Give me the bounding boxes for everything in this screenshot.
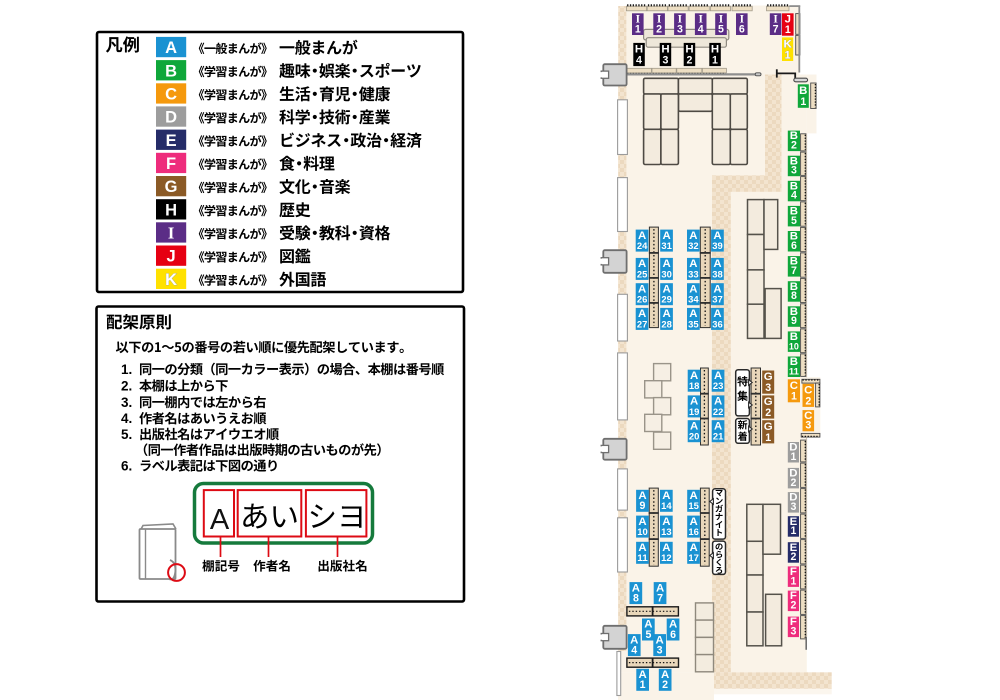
svg-text:27: 27 <box>637 319 648 330</box>
svg-text:A: A <box>713 283 721 295</box>
svg-text:A: A <box>638 308 646 320</box>
svg-text:9: 9 <box>791 315 797 327</box>
svg-text:26: 26 <box>637 295 648 306</box>
svg-text:A: A <box>714 396 722 408</box>
svg-text:A: A <box>638 258 646 270</box>
svg-text:4: 4 <box>636 55 642 67</box>
svg-text:37: 37 <box>712 295 723 306</box>
svg-text:2: 2 <box>790 477 796 489</box>
svg-text:B: B <box>165 62 177 80</box>
svg-text:6: 6 <box>670 629 676 641</box>
svg-text:A: A <box>714 370 722 382</box>
svg-text:2: 2 <box>656 23 662 35</box>
svg-text:1: 1 <box>640 679 646 691</box>
svg-text:A: A <box>638 516 646 528</box>
svg-text:5.: 5. <box>121 427 132 442</box>
svg-text:19: 19 <box>689 407 700 418</box>
svg-text:2: 2 <box>790 551 796 563</box>
svg-text:3: 3 <box>765 382 771 394</box>
svg-text:A: A <box>662 516 670 528</box>
svg-text:21: 21 <box>713 432 724 443</box>
svg-text:2: 2 <box>790 600 796 612</box>
svg-text:16: 16 <box>688 527 699 538</box>
svg-text:F: F <box>166 155 176 173</box>
svg-text:31: 31 <box>661 241 672 252</box>
svg-text:A: A <box>662 308 670 320</box>
svg-text:J: J <box>167 248 176 266</box>
svg-text:7: 7 <box>657 593 663 605</box>
svg-text:A: A <box>210 504 230 536</box>
svg-text:17: 17 <box>688 553 699 564</box>
svg-text:18: 18 <box>689 381 700 392</box>
svg-text:A: A <box>662 490 670 502</box>
svg-text:7: 7 <box>773 23 779 35</box>
svg-text:5: 5 <box>791 215 797 227</box>
svg-text:24: 24 <box>637 241 648 252</box>
svg-text:A: A <box>165 39 177 57</box>
svg-text:1: 1 <box>800 96 806 108</box>
svg-text:20: 20 <box>689 432 700 443</box>
svg-text:K: K <box>165 271 177 289</box>
svg-text:D: D <box>165 109 177 127</box>
svg-text:39: 39 <box>712 241 723 252</box>
svg-text:5: 5 <box>718 23 724 35</box>
svg-text:13: 13 <box>661 527 672 538</box>
svg-text:1: 1 <box>785 49 791 61</box>
svg-text:38: 38 <box>712 269 723 280</box>
svg-text:A: A <box>689 308 697 320</box>
svg-text:A: A <box>690 396 698 408</box>
svg-text:4.: 4. <box>121 411 132 426</box>
svg-text:1: 1 <box>785 24 791 36</box>
svg-text:1.: 1. <box>121 362 132 377</box>
svg-text:H: H <box>165 201 177 219</box>
svg-text:A: A <box>713 258 721 270</box>
svg-text:33: 33 <box>688 269 699 280</box>
svg-text:3.: 3. <box>121 395 132 410</box>
svg-text:10: 10 <box>789 341 799 352</box>
svg-text:11: 11 <box>789 366 800 377</box>
svg-text:1: 1 <box>765 432 771 444</box>
svg-text:3: 3 <box>790 626 796 638</box>
svg-text:A: A <box>689 230 697 242</box>
svg-text:A: A <box>638 283 646 295</box>
svg-text:E: E <box>166 132 177 150</box>
svg-text:A: A <box>689 283 697 295</box>
svg-text:A: A <box>662 542 670 554</box>
svg-text:2: 2 <box>662 679 668 691</box>
svg-text:1: 1 <box>791 391 797 403</box>
svg-text:3: 3 <box>663 55 669 67</box>
svg-text:2.: 2. <box>121 379 132 394</box>
svg-text:28: 28 <box>661 319 672 330</box>
svg-text:A: A <box>713 308 721 320</box>
svg-text:A: A <box>662 283 670 295</box>
svg-text:C: C <box>165 86 177 104</box>
svg-text:34: 34 <box>688 295 699 306</box>
svg-text:A: A <box>690 370 698 382</box>
svg-text:A: A <box>689 542 697 554</box>
svg-text:4: 4 <box>791 190 797 202</box>
svg-text:23: 23 <box>713 381 724 392</box>
svg-text:9: 9 <box>640 500 646 512</box>
svg-text:6: 6 <box>791 240 797 252</box>
svg-text:A: A <box>689 490 697 502</box>
svg-text:A: A <box>713 230 721 242</box>
svg-text:29: 29 <box>661 295 672 306</box>
svg-text:A: A <box>689 516 697 528</box>
svg-text:A: A <box>714 420 722 432</box>
svg-text:11: 11 <box>637 553 648 564</box>
svg-text:3: 3 <box>791 165 797 177</box>
svg-text:1: 1 <box>790 451 796 463</box>
svg-text:2: 2 <box>791 140 797 152</box>
svg-text:2: 2 <box>805 395 811 407</box>
svg-text:14: 14 <box>661 501 672 512</box>
svg-text:36: 36 <box>712 319 723 330</box>
svg-text:8: 8 <box>633 593 639 605</box>
svg-text:2: 2 <box>687 55 693 67</box>
svg-text:3: 3 <box>790 501 796 513</box>
svg-text:10: 10 <box>637 527 648 538</box>
svg-text:22: 22 <box>713 407 724 418</box>
svg-text:3: 3 <box>657 645 663 657</box>
svg-text:1: 1 <box>790 575 796 587</box>
svg-text:5: 5 <box>645 629 651 641</box>
svg-text:1: 1 <box>712 55 718 67</box>
svg-text:A: A <box>638 542 646 554</box>
svg-text:32: 32 <box>688 241 699 252</box>
svg-text:6.: 6. <box>121 459 132 474</box>
svg-text:12: 12 <box>661 553 672 564</box>
svg-text:I: I <box>168 224 174 243</box>
svg-text:A: A <box>689 258 697 270</box>
svg-text:7: 7 <box>791 265 797 277</box>
svg-text:2: 2 <box>765 407 771 419</box>
svg-text:8: 8 <box>791 290 797 302</box>
svg-text:A: A <box>662 258 670 270</box>
svg-text:1: 1 <box>635 23 641 35</box>
svg-text:35: 35 <box>688 319 699 330</box>
svg-text:3: 3 <box>677 23 683 35</box>
svg-text:3: 3 <box>805 420 811 432</box>
svg-text:25: 25 <box>637 269 648 280</box>
svg-text:30: 30 <box>661 269 672 280</box>
svg-text:4: 4 <box>631 645 637 657</box>
svg-text:A: A <box>662 230 670 242</box>
svg-text:A: A <box>690 420 698 432</box>
svg-text:6: 6 <box>739 23 745 35</box>
svg-text:A: A <box>638 230 646 242</box>
svg-text:1: 1 <box>790 525 796 537</box>
svg-text:G: G <box>165 178 178 196</box>
svg-text:15: 15 <box>688 501 699 512</box>
svg-text:4: 4 <box>698 23 704 35</box>
